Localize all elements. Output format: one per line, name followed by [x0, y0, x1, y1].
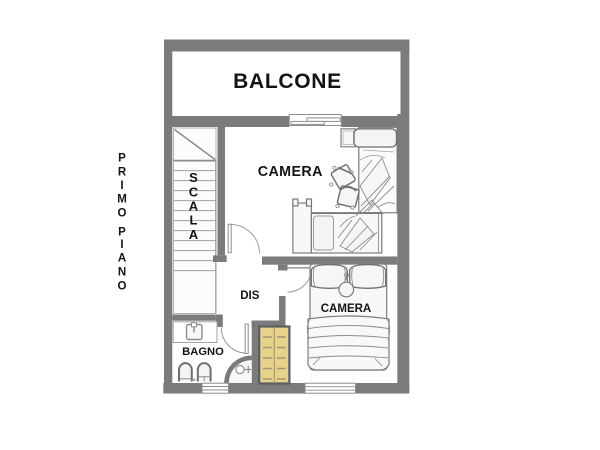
svg-text:A: A: [118, 253, 126, 265]
svg-text:P: P: [118, 153, 126, 165]
svg-text:I: I: [120, 180, 123, 192]
svg-text:R: R: [118, 167, 127, 179]
svg-text:A: A: [189, 227, 199, 242]
svg-text:BALCONE: BALCONE: [233, 70, 342, 93]
svg-text:M: M: [117, 194, 127, 206]
svg-text:P: P: [118, 226, 126, 238]
svg-text:S: S: [189, 170, 198, 185]
svg-text:CAMERA: CAMERA: [258, 164, 323, 180]
svg-text:N: N: [118, 267, 126, 279]
svg-text:I: I: [120, 239, 123, 251]
svg-text:A: A: [189, 199, 199, 214]
svg-text:DIS: DIS: [240, 290, 260, 302]
svg-text:O: O: [118, 208, 127, 220]
svg-text:BAGNO: BAGNO: [182, 346, 224, 358]
svg-text:L: L: [190, 213, 198, 228]
svg-text:C: C: [189, 184, 199, 199]
svg-text:CAMERA: CAMERA: [321, 303, 371, 315]
svg-text:O: O: [118, 281, 127, 293]
